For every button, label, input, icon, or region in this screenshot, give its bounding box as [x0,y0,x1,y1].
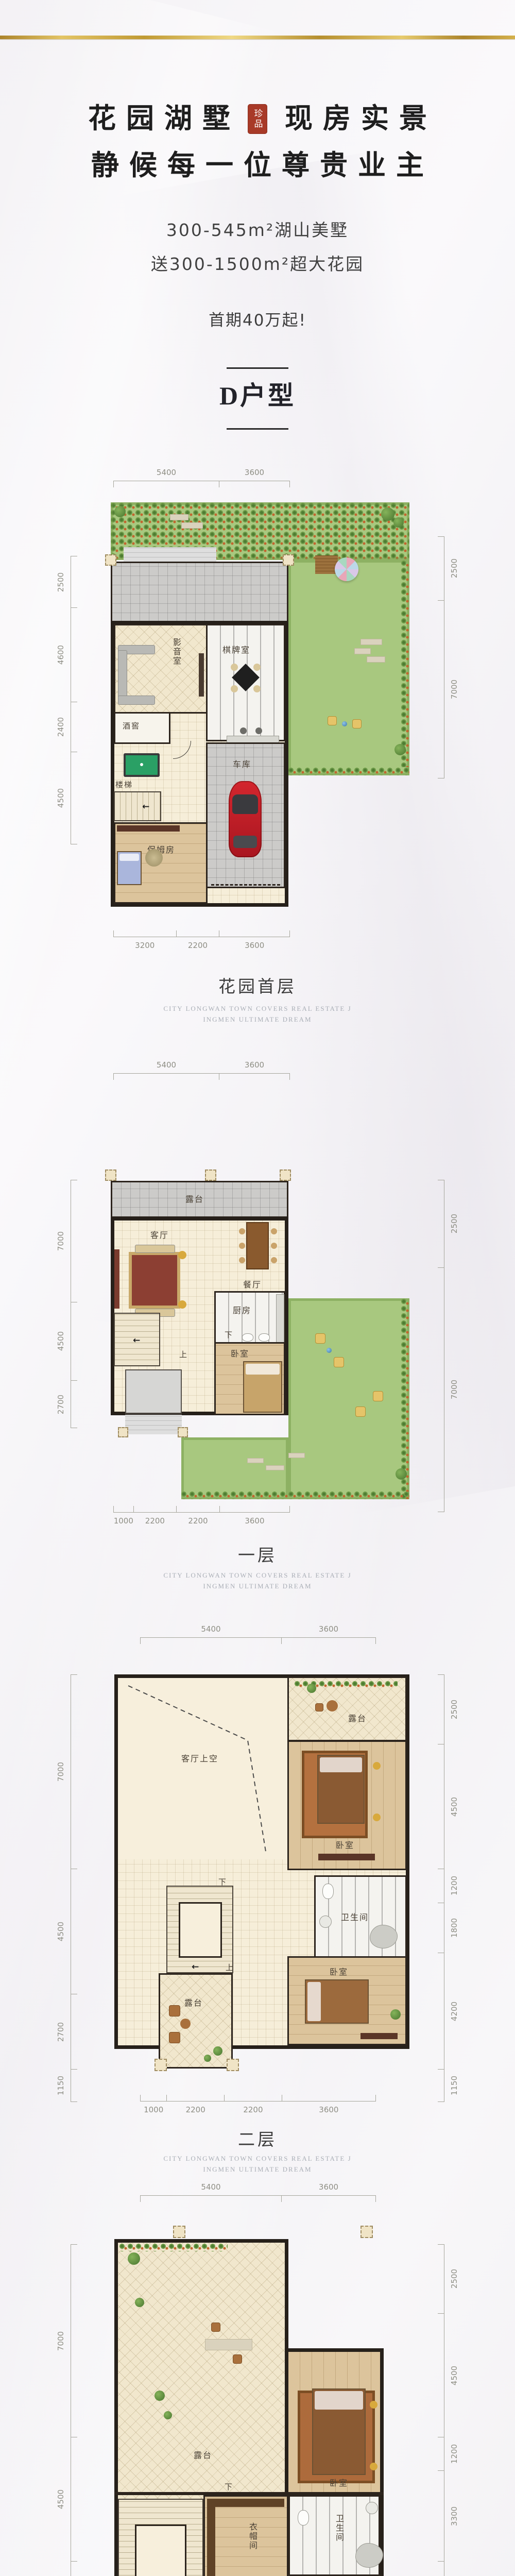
floor1-dim-chain-left: 2500460024004500 [71,556,77,844]
terrace-table [180,2019,191,2029]
room-label-void: 客厅上空 [181,1752,218,1764]
dim-segment: 2200 [166,2095,224,2101]
floor1-caption-en: CITY LONGWAN TOWN COVERS REAL ESTATE J I… [0,1004,515,1025]
dim-segment: 1150 [438,2069,444,2102]
entry-steps [125,1415,182,1434]
caption-en-line2: INGMEN ULTIMATE DREAM [203,1015,312,1023]
dim-segment: 2500 [438,2244,444,2313]
chair-dot [253,685,261,692]
stair-label-down: 下 [218,1876,227,1887]
dim-segment: 2200 [176,1506,219,1512]
room-label-bedroom: 卧室 [231,1347,249,1359]
dim-segment: 5400 [113,1074,219,1080]
dim-segment: 2700 [71,2561,77,2576]
dim-label: 1000 [144,2105,163,2114]
room-label-terrace-top: 露台 [348,1711,367,1724]
dim-segment: 5400 [113,481,219,487]
garden-chair [315,1333,325,1344]
dim-segment: 4500 [71,752,77,844]
dim-segment: 1200 [438,2437,444,2470]
subtitle-area: 300-545m²湖山美墅 [0,216,515,241]
bar-stool [240,727,247,734]
garden-path-stone [170,514,188,520]
unit-type-divider-top [227,367,288,369]
dim-segment: 1150 [71,2069,77,2102]
terrace-plants [119,2243,228,2251]
dim-segment: 2700 [71,1380,77,1428]
dim-segment: 2200 [176,930,219,937]
kitchen-sink [242,1333,253,1342]
stair-well [179,1902,222,1958]
bed [317,1755,365,1824]
garden-path-stone [354,648,371,654]
staircase [114,791,161,821]
terrace-plant [164,2411,172,2419]
dim-label: 3600 [319,1624,338,1634]
dim-segment: 4500 [438,2313,444,2437]
title-line2: 静候每一位尊贵业主 [0,150,515,181]
room-label-terrace-bottom: 露台 [184,1996,203,2008]
dim-label: 5400 [201,2182,220,2192]
pillar [227,2059,239,2071]
dim-label: 2500 [56,567,65,598]
sofa [135,1245,175,1253]
dim-segment: 7000 [71,1180,77,1302]
room-label-bedroom-right: 卧室 [336,1838,354,1851]
room-label-bathroom: 卫生间 [333,2514,345,2542]
garden-chair [352,719,362,728]
floor3-dim-chain-right: 250045001200180042001150 [438,1674,444,2102]
terrace-chair [169,2032,180,2043]
dim-label: 4500 [450,1791,459,1822]
dim-segment: 3600 [219,1506,290,1512]
pillar [105,554,116,566]
red-car [229,781,262,857]
pillar [360,2226,373,2238]
room-label-chess-room: 棋牌室 [222,643,250,655]
dim-segment: 3600 [282,2095,376,2101]
dim-segment: 7000 [438,600,444,778]
dim-label: 7000 [450,674,459,705]
dim-label: 2500 [450,2263,459,2294]
room-label-stairs: 楼梯 [115,779,133,790]
stair-label-down: 下 [225,1329,233,1340]
caption-en-line1: CITY LONGWAN TOWN COVERS REAL ESTATE J [163,2155,351,2162]
pillar [105,1170,116,1181]
void-dashed-outline [120,1680,288,1858]
pillar [178,1427,188,1437]
indoor-plant [390,2009,401,2020]
dim-segment: 1000 [113,1506,133,1512]
dim-segment: 4500 [438,1744,444,1869]
floor3-caption: 二层 [0,2126,515,2150]
dim-label: 5400 [201,1624,220,1634]
dim-label: 2700 [56,1389,65,1420]
toilet [322,1884,334,1899]
dim-label: 3600 [245,1516,264,1526]
terrace-chair [211,2323,220,2332]
room-label-living-room: 客厅 [150,1228,169,1241]
dim-label: 1150 [56,2070,65,2101]
terrace-plant [154,2391,165,2401]
floor4-dim-chain-top: 54003600 [140,2195,376,2202]
dim-segment: 2500 [71,556,77,607]
gold-divider-line [0,36,515,39]
garden-chair [334,1357,344,1367]
dim-label: 4200 [450,1996,459,2027]
dim-segment: 3600 [219,930,290,937]
dim-label: 2500 [450,1208,459,1239]
dim-label: 3200 [135,941,154,950]
floor2-caption-en: CITY LONGWAN TOWN COVERS REAL ESTATE J I… [0,1570,515,1592]
bedroom-bench [318,1854,375,1860]
dim-label: 3600 [245,1060,264,1070]
garden-plant [393,517,404,528]
terrace-steps [124,547,216,562]
stair-well [135,2524,186,2576]
dim-segment: 5400 [140,1638,281,1644]
dim-label: 2500 [450,1694,459,1725]
sofa [118,650,127,701]
garden-chair [355,1406,366,1417]
lamp [373,1762,381,1770]
dim-segment: 1800 [438,1903,444,1953]
garden-plant [114,506,126,517]
caption-en-line2: INGMEN ULTIMATE DREAM [203,1582,312,1590]
dim-segment: 2700 [71,1994,77,2069]
garden-chair [328,716,337,725]
terrace-chair [233,2354,242,2364]
bed [312,2388,366,2475]
floor2-dim-chain-left: 700045002700 [71,1180,77,1428]
chair-dot [231,685,238,692]
floor2-dim-chain-right: 25007000 [438,1180,444,1512]
dim-label: 3600 [319,2182,338,2192]
tv-wall [114,1249,119,1309]
caption-en-line1: CITY LONGWAN TOWN COVERS REAL ESTATE J [163,1571,351,1579]
pillar [118,1427,128,1437]
round-rug [145,849,163,867]
unit-type-title: D户型 [0,375,515,412]
dim-segment: 2700 [438,2561,444,2576]
pillar [154,2059,167,2071]
dining-chair [271,1228,277,1234]
dim-segment: 5400 [140,2196,281,2202]
dim-segment: 2200 [224,2095,282,2101]
floor2-caption: 一层 [0,1541,515,1566]
garden-path-stone [360,639,382,645]
bed-pillow [246,1364,280,1375]
terrace-plant [307,1684,316,1693]
bed-pillow [320,1757,362,1772]
unit-type-divider-bottom [227,428,288,430]
lamp [373,1814,381,1821]
floor1-dim-chain-right: 25007000 [438,536,444,778]
bed [117,851,142,885]
pillar [173,2226,185,2238]
dim-segment: 2500 [438,1674,444,1744]
dim-label: 4500 [56,1326,65,1357]
room-label-bedroom: 卧室 [330,2476,348,2488]
title-part2: 现房实景 [274,104,437,134]
dim-label: 1200 [450,2438,459,2469]
room-label-cloak-room: 衣帽间 [246,2522,259,2550]
terrace-stone-table [205,2339,252,2350]
bed-pillow [307,1982,321,2021]
dim-segment: 1200 [438,1869,444,1902]
tv-cabinet [199,653,204,697]
title-part1: 花园湖墅 [78,104,241,134]
floor1-dim-chain-top: 54003600 [113,481,290,487]
room-label-bedroom-bottom: 卧室 [330,1965,348,1977]
garden-lawn-right [288,1298,409,1499]
dim-label: 5400 [157,1060,176,1070]
terrace-chair [315,1703,323,1711]
dim-segment: 3300 [438,2470,444,2561]
room-label-kitchen: 厨房 [233,1303,251,1316]
wardrobe [117,825,180,832]
dining-chair [239,1243,245,1249]
floor2-dim-chain-bottom: 1000220022003600 [113,1506,290,1513]
garden-lawn-right [288,560,409,775]
dim-label: 2200 [145,1516,165,1526]
room-label-media-room: 影音室 [170,638,182,666]
dim-segment: 4500 [71,1869,77,1994]
garage-door-dashed [211,884,280,886]
terrace-plant [128,2252,140,2265]
subtitle-garden: 送300-1500m²超大花园 [0,250,515,275]
chair-dot [253,664,261,671]
parasol-umbrella [335,557,358,581]
dim-label: 1800 [450,1912,459,1943]
terrace-table [327,1700,338,1711]
dim-segment: 4500 [71,2437,77,2561]
terrace-plant [135,2298,144,2307]
dim-label: 2200 [188,1516,208,1526]
garden-ball [342,721,347,726]
subtitle-price: 首期40万起! [0,307,515,330]
dim-segment: 4500 [71,1302,77,1380]
stair-label-down: 下 [225,2481,233,2492]
stair-arrow: ← [133,1335,140,1346]
dim-label: 1000 [114,1516,133,1526]
dim-label: 4600 [56,639,65,670]
wardrobe [207,2499,284,2507]
dim-label: 3600 [245,468,264,477]
floor1-caption: 花园首层 [0,973,515,997]
poster-page: 花园湖墅 珍品 现房实景 静候每一位尊贵业主 300-545m²湖山美墅 送30… [0,0,515,2576]
dim-label: 5400 [157,468,176,477]
dim-label: 2200 [186,2105,205,2114]
terrace-plant [213,2046,222,2056]
dim-label: 4500 [56,1916,65,1947]
bed-pillow [315,2391,363,2410]
dim-label: 4500 [56,783,65,814]
bed [243,1361,282,1413]
sink [366,2502,378,2514]
lamp [178,1300,186,1309]
living-rug [129,1252,180,1309]
toilet [298,2510,309,2526]
dining-chair [239,1257,245,1263]
caption-en-line2: INGMEN ULTIMATE DREAM [203,2165,312,2173]
dim-label: 3600 [245,941,264,950]
pillar [280,1170,291,1181]
dim-segment: 3600 [219,481,290,487]
bar-counter [227,736,279,743]
lamp [178,1251,186,1259]
dim-segment: 3200 [113,930,176,937]
floor3-dim-chain-top: 54003600 [140,1637,376,1644]
garden-path-stone [288,1453,305,1458]
room-label-terrace: 露台 [194,2448,212,2461]
dim-label: 2200 [188,941,208,950]
dining-chair [271,1257,277,1263]
floor1-dim-chain-bottom: 320022003600 [113,930,290,937]
dining-chair [239,1228,245,1234]
dim-segment: 7000 [438,1267,444,1512]
dim-label: 4500 [450,2360,459,2391]
dim-label: 7000 [56,2326,65,2357]
pillar [205,1170,216,1181]
floor2-dim-chain-top: 54003600 [113,1073,290,1080]
room-label-dining-room: 餐厅 [243,1278,262,1290]
dining-table [246,1222,269,1269]
stair-arrow: ← [142,802,149,812]
garden-plant [394,744,406,755]
main-title-row: 花园湖墅 珍品 现房实景 [0,101,515,137]
dim-label: 2400 [56,711,65,742]
dim-segment: 1000 [140,2095,166,2101]
room-label-garage: 车库 [233,757,251,770]
entry-porch [125,1369,182,1414]
lamp [370,2401,377,2409]
bar-stool [255,727,262,734]
floor4-dim-chain-right: 25004500120033002700 [438,2244,444,2576]
dim-label: 4500 [56,2484,65,2515]
kitchen-counter [276,1294,284,1343]
garden-path-stone [266,1465,284,1470]
bed-pillow [119,854,139,861]
pillar [283,554,294,566]
garden-flower-border [401,560,409,767]
bed [305,1979,369,2024]
garden-flower-border [181,1491,409,1499]
terrace-chair [169,2005,180,2016]
kitchen-stove [259,1333,270,1342]
paved-terrace [111,562,288,623]
sink [319,1916,332,1928]
floor3-caption-en: CITY LONGWAN TOWN COVERS REAL ESTATE J I… [0,2154,515,2175]
room-label-wine-cellar: 酒窖 [123,720,140,731]
floor4-dim-chain-left: 700045002700 [71,2244,77,2576]
dim-segment: 4600 [71,607,77,702]
lamp [370,2463,377,2470]
dim-segment: 2200 [133,1506,177,1512]
terrace-plant [204,2055,211,2062]
dim-label: 1150 [450,2070,459,2101]
floor3-dim-chain-left: 7000450027001150 [71,1674,77,2102]
garden-flower-border [288,767,409,775]
stair-label-up: 上 [179,1349,188,1360]
room-label-bathroom: 卫生间 [341,1910,369,1923]
terrace-bottom-left [159,1973,233,2069]
stair-arrow: ← [192,1962,199,1972]
dim-label: 2500 [450,553,459,584]
dim-segment: 3600 [219,1074,290,1080]
dim-label: 2700 [56,2016,65,2047]
dim-label: 3300 [450,2501,459,2532]
dim-label: 7000 [450,1374,459,1405]
dim-segment: 4200 [438,1953,444,2069]
chair-dot [231,664,238,671]
dim-segment: 2500 [438,1180,444,1267]
dim-label: 7000 [56,1756,65,1787]
floor3-dim-chain-bottom: 1000220022003600 [140,2095,376,2102]
garden-plant [381,507,394,521]
dim-segment: 3600 [281,1638,376,1644]
dim-segment: 7000 [71,2244,77,2437]
caption-en-line1: CITY LONGWAN TOWN COVERS REAL ESTATE J [163,1005,351,1012]
dim-label: 2200 [243,2105,263,2114]
garden-chair [373,1391,383,1401]
dim-label: 7000 [56,1226,65,1257]
dim-label: 1200 [450,1870,459,1901]
billiard-table [124,753,160,777]
garden-path-stone [181,522,203,529]
wardrobe [207,2507,215,2576]
dim-segment: 2500 [438,536,444,600]
garden-path-stone [367,656,385,663]
stair-label-up: 上 [226,1962,234,1973]
dining-chair [271,1243,277,1249]
garden-path-stone [247,1458,264,1463]
seal-stamp: 珍品 [248,104,267,134]
garden-plant [396,1468,407,1480]
dim-segment: 7000 [71,1674,77,1869]
sofa [118,696,155,705]
desk [360,2033,398,2039]
dim-segment: 2400 [71,702,77,751]
dim-segment: 3600 [281,2196,376,2202]
dim-label: 3600 [319,2105,338,2114]
garden-ball [327,1348,332,1353]
room-label-terrace: 露台 [185,1192,204,1205]
